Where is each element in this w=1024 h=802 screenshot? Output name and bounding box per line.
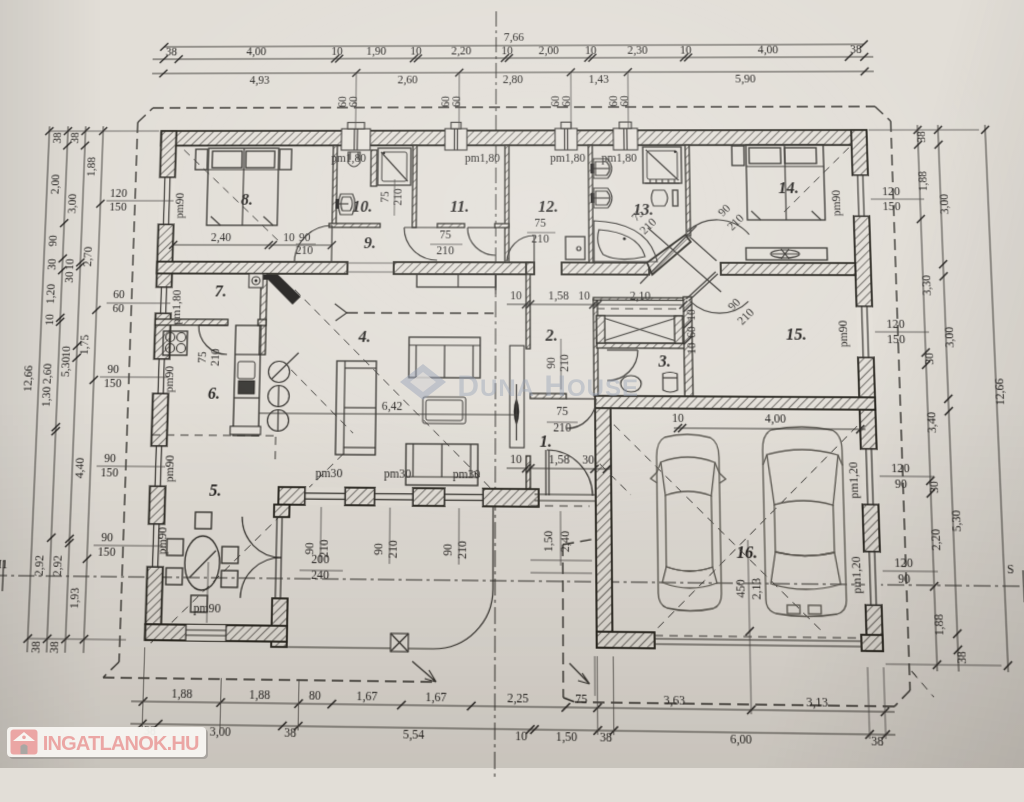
svg-text:10: 10 [410, 45, 422, 57]
svg-text:1,88: 1,88 [933, 613, 947, 635]
svg-text:1,88: 1,88 [917, 171, 931, 192]
svg-text:pm1,80: pm1,80 [601, 152, 637, 164]
svg-text:10: 10 [44, 313, 57, 325]
svg-text:2,20: 2,20 [929, 528, 943, 550]
svg-text:10: 10 [685, 309, 698, 321]
svg-text:75: 75 [379, 191, 392, 203]
svg-text:75: 75 [534, 217, 546, 230]
svg-text:30: 30 [923, 352, 937, 364]
svg-text:2,10: 2,10 [630, 290, 651, 303]
svg-text:210: 210 [392, 188, 405, 206]
svg-text:4.: 4. [357, 328, 370, 346]
svg-text:4,40: 4,40 [73, 457, 87, 478]
svg-text:3,00: 3,00 [66, 193, 79, 213]
svg-text:120: 120 [891, 462, 910, 475]
svg-text:2,92: 2,92 [51, 555, 65, 576]
svg-text:150: 150 [97, 546, 116, 559]
svg-text:38: 38 [955, 651, 969, 664]
svg-text:S: S [1007, 563, 1014, 577]
svg-text:14.: 14. [778, 180, 799, 198]
svg-text:1,58: 1,58 [549, 454, 571, 467]
svg-text:38: 38 [871, 735, 884, 749]
svg-text:10.: 10. [352, 198, 372, 216]
svg-text:2,70: 2,70 [82, 246, 95, 266]
svg-text:pm1,80: pm1,80 [170, 289, 184, 324]
svg-text:60: 60 [347, 96, 360, 108]
svg-text:10: 10 [60, 345, 73, 357]
svg-text:pm90: pm90 [837, 320, 851, 347]
svg-text:15.: 15. [786, 326, 807, 344]
svg-text:200: 200 [311, 553, 330, 566]
svg-text:12,66: 12,66 [22, 365, 36, 392]
svg-text:1,30: 1,30 [40, 386, 54, 407]
svg-text:3,40: 3,40 [925, 411, 939, 433]
svg-text:5,90: 5,90 [735, 73, 756, 85]
svg-text:38: 38 [48, 641, 61, 654]
svg-text:90: 90 [107, 363, 120, 376]
svg-text:75: 75 [439, 229, 451, 242]
svg-text:90: 90 [299, 232, 311, 244]
svg-text:210: 210 [296, 245, 314, 258]
svg-text:120: 120 [894, 557, 913, 571]
svg-text:10: 10 [515, 730, 528, 744]
svg-text:3,00: 3,00 [943, 326, 957, 347]
svg-text:10: 10 [331, 46, 343, 58]
svg-text:1,67: 1,67 [425, 691, 447, 705]
svg-text:60: 60 [451, 95, 464, 107]
svg-text:2,30: 2,30 [627, 45, 648, 57]
svg-text:90: 90 [47, 235, 60, 247]
svg-text:1,50: 1,50 [542, 530, 555, 552]
svg-text:120: 120 [882, 186, 901, 199]
svg-text:1,67: 1,67 [356, 690, 378, 704]
svg-text:2,25: 2,25 [507, 692, 529, 706]
svg-text:38: 38 [284, 727, 297, 741]
svg-text:5,30: 5,30 [59, 356, 72, 377]
svg-text:2,60: 2,60 [398, 74, 419, 86]
svg-text:1,75: 1,75 [78, 334, 91, 355]
svg-text:90: 90 [101, 531, 114, 544]
svg-text:16.: 16. [736, 543, 757, 562]
svg-text:75: 75 [575, 693, 588, 707]
svg-text:pm30: pm30 [315, 467, 343, 480]
svg-text:7.: 7. [214, 283, 226, 301]
svg-text:150: 150 [882, 201, 901, 214]
svg-text:10: 10 [686, 342, 699, 354]
svg-text:13.: 13. [633, 201, 653, 219]
svg-text:38: 38 [30, 640, 43, 653]
svg-text:pm90: pm90 [163, 455, 177, 483]
svg-text:75: 75 [196, 351, 209, 363]
svg-text:1,20: 1,20 [45, 283, 58, 304]
svg-text:4,00: 4,00 [765, 413, 787, 426]
svg-text:90: 90 [104, 452, 117, 465]
svg-text:4,00: 4,00 [758, 44, 779, 56]
svg-text:12.: 12. [538, 198, 558, 216]
svg-text:150: 150 [887, 333, 906, 346]
svg-text:210: 210 [456, 540, 469, 559]
svg-text:pm1,80: pm1,80 [331, 153, 367, 165]
svg-text:10: 10 [510, 290, 522, 303]
svg-text:38: 38 [850, 44, 863, 56]
svg-text:38: 38 [51, 132, 64, 144]
svg-text:5,30: 5,30 [950, 510, 964, 532]
svg-text:10: 10 [680, 44, 692, 56]
svg-text:4,93: 4,93 [250, 75, 271, 87]
svg-text:210: 210 [387, 540, 400, 559]
svg-text:60: 60 [113, 289, 125, 302]
svg-text:2,92: 2,92 [33, 555, 47, 576]
svg-text:1,90: 1,90 [366, 46, 387, 58]
svg-text:1,88: 1,88 [85, 156, 98, 176]
svg-text:30: 30 [928, 480, 942, 493]
svg-text:10: 10 [672, 412, 685, 425]
svg-text:10: 10 [501, 45, 513, 57]
svg-text:11.: 11. [450, 198, 469, 216]
svg-text:pm30: pm30 [384, 468, 412, 481]
svg-text:pm1,80: pm1,80 [550, 152, 586, 164]
svg-text:3,63: 3,63 [664, 694, 686, 708]
svg-text:6,00: 6,00 [730, 733, 752, 747]
svg-text:30: 30 [46, 258, 59, 270]
svg-text:80: 80 [309, 689, 322, 703]
svg-text:3,00: 3,00 [938, 194, 952, 215]
svg-text:38: 38 [166, 46, 178, 58]
svg-text:1,88: 1,88 [249, 689, 271, 703]
svg-text:8.: 8. [241, 191, 253, 208]
svg-text:10: 10 [64, 258, 77, 270]
svg-text:10: 10 [510, 453, 522, 466]
svg-text:pm1,80: pm1,80 [465, 152, 501, 164]
svg-text:120: 120 [886, 318, 905, 331]
svg-text:75: 75 [556, 405, 569, 418]
svg-text:450: 450 [734, 579, 748, 598]
svg-text:3.: 3. [657, 353, 671, 371]
svg-text:38: 38 [915, 131, 928, 143]
svg-text:pm90: pm90 [163, 365, 177, 392]
svg-text:210: 210 [531, 233, 549, 246]
svg-text:210: 210 [436, 245, 454, 258]
svg-text:30: 30 [582, 454, 595, 467]
svg-text:1,58: 1,58 [548, 290, 569, 303]
svg-text:6.: 6. [208, 385, 221, 403]
svg-text:1,43: 1,43 [589, 74, 610, 86]
svg-text:10: 10 [585, 45, 597, 57]
svg-text:pm90: pm90 [156, 527, 170, 555]
svg-text:90: 90 [898, 573, 911, 587]
svg-text:60: 60 [112, 303, 125, 316]
svg-text:4,00: 4,00 [246, 46, 267, 58]
svg-text:150: 150 [100, 467, 119, 480]
svg-text:90: 90 [716, 202, 734, 219]
svg-text:10: 10 [578, 290, 590, 303]
svg-text:1,88: 1,88 [171, 688, 193, 702]
svg-text:2,13: 2,13 [750, 577, 764, 599]
svg-text:12,66: 12,66 [993, 378, 1007, 406]
svg-text:3,00: 3,00 [210, 725, 232, 739]
svg-text:pm30: pm30 [453, 468, 481, 481]
svg-text:210: 210 [209, 348, 222, 366]
svg-text:90: 90 [372, 542, 385, 555]
svg-text:pm90: pm90 [174, 192, 187, 218]
svg-text:H1: H1 [0, 558, 8, 571]
svg-text:150: 150 [109, 201, 127, 213]
svg-text:120: 120 [110, 188, 128, 200]
svg-text:90: 90 [726, 296, 744, 314]
svg-text:2,20: 2,20 [451, 45, 472, 57]
svg-text:1,50: 1,50 [556, 730, 578, 744]
svg-text:2.: 2. [544, 327, 557, 345]
svg-text:3,13: 3,13 [806, 696, 829, 710]
svg-text:2,00: 2,00 [49, 174, 62, 194]
svg-text:5,54: 5,54 [403, 728, 425, 742]
svg-text:pm1,20: pm1,20 [850, 556, 865, 594]
svg-text:1,93: 1,93 [68, 587, 82, 609]
svg-text:30: 30 [63, 271, 76, 283]
svg-text:7,66: 7,66 [504, 32, 525, 44]
svg-text:pm1,20: pm1,20 [847, 461, 861, 498]
svg-text:38: 38 [600, 731, 613, 745]
svg-text:pm90: pm90 [830, 189, 844, 216]
svg-text:3,30: 3,30 [920, 275, 934, 296]
svg-text:5.: 5. [209, 482, 222, 501]
svg-text:2,00: 2,00 [539, 45, 560, 57]
svg-text:150: 150 [104, 377, 122, 390]
svg-text:90: 90 [895, 478, 908, 491]
svg-text:2,40: 2,40 [211, 232, 232, 244]
svg-text:1.: 1. [540, 433, 552, 451]
svg-text:10: 10 [283, 232, 295, 244]
svg-text:2,60: 2,60 [41, 363, 54, 384]
svg-text:38: 38 [69, 132, 82, 144]
svg-text:2,80: 2,80 [503, 74, 524, 86]
svg-text:60: 60 [619, 95, 632, 107]
svg-text:60: 60 [560, 95, 573, 107]
svg-text:90: 90 [442, 543, 455, 556]
svg-text:9.: 9. [364, 235, 376, 253]
svg-text:210: 210 [553, 422, 571, 435]
